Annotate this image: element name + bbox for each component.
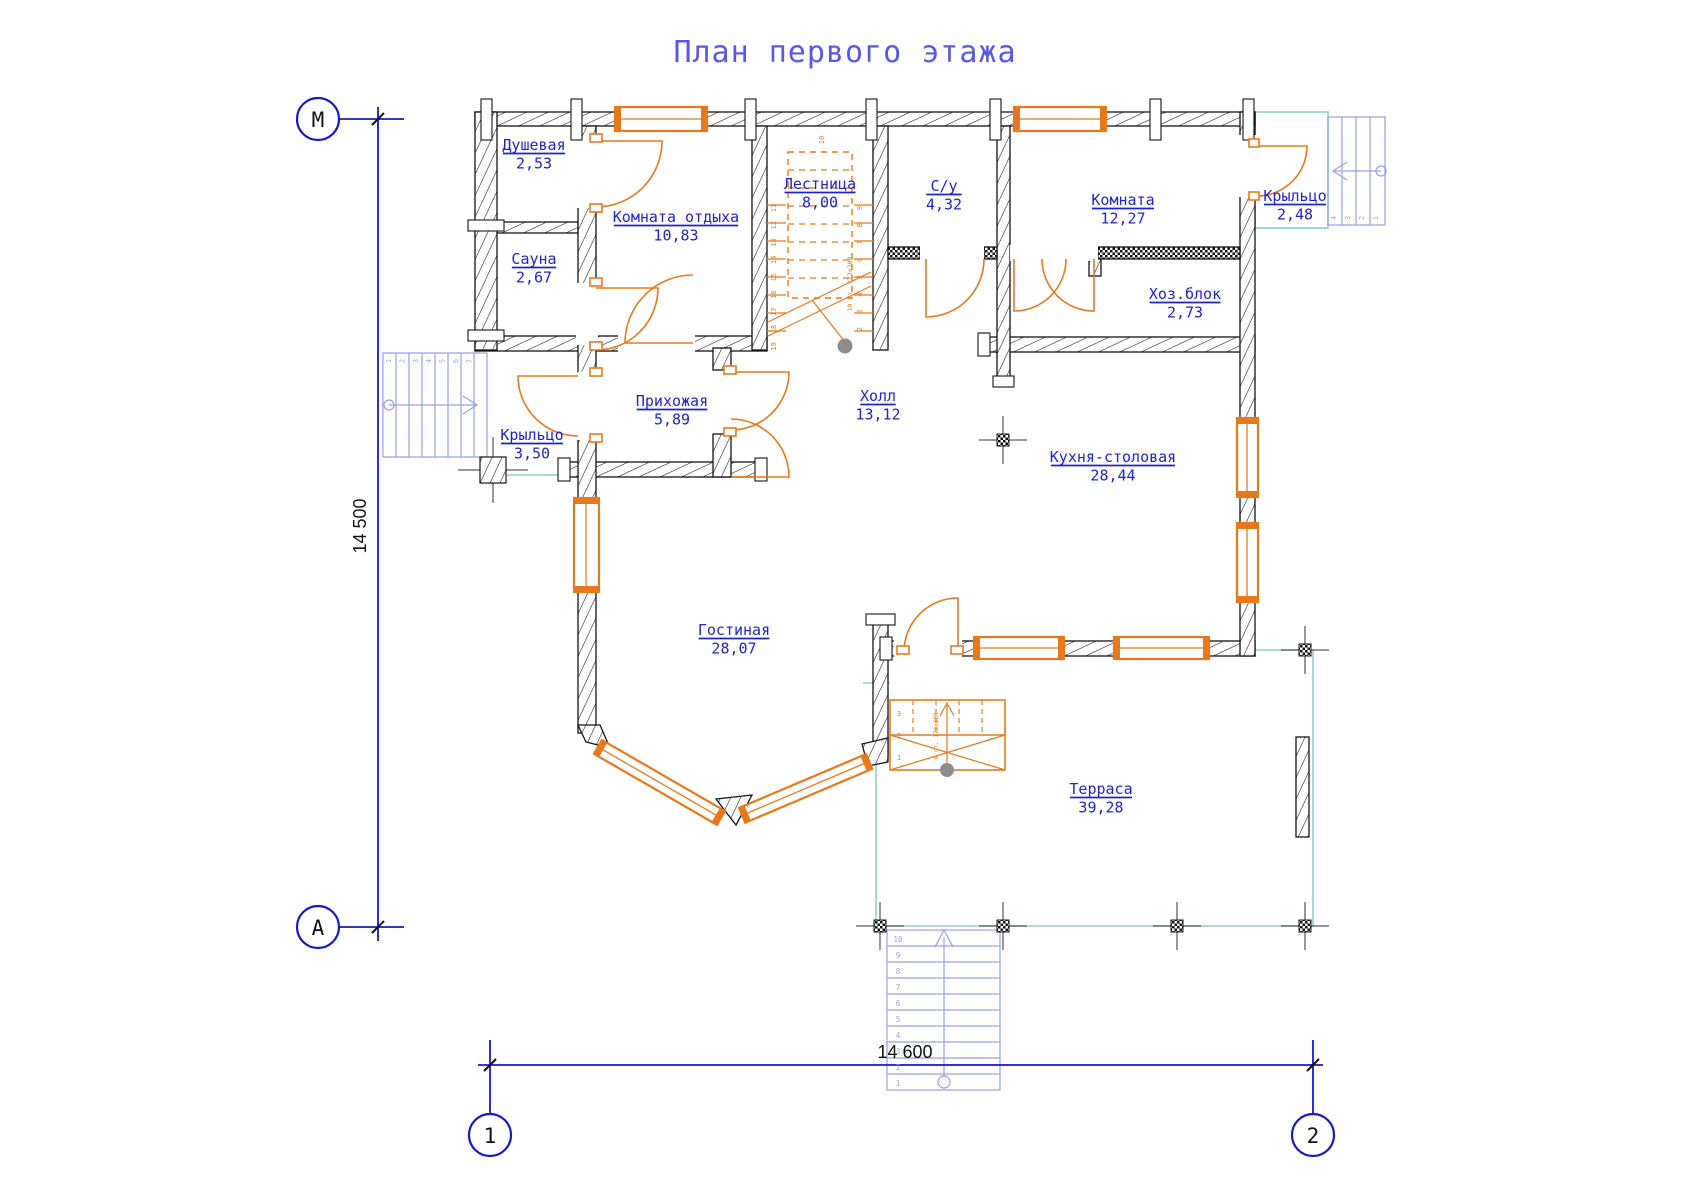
wall-wc-east bbox=[997, 126, 1010, 382]
room-name: Сауна bbox=[511, 250, 556, 268]
stair-step-number: 4 bbox=[856, 292, 864, 296]
stair-step-number: 2 bbox=[896, 1063, 901, 1072]
terrace-stair-note: 9 ст. 173х300 bbox=[933, 712, 940, 759]
room-area: 28,07 bbox=[711, 640, 756, 658]
stair-step-number: 1 bbox=[897, 754, 901, 762]
room-area: 4,32 bbox=[926, 196, 962, 214]
room-label-hozblok: Хоз.блок2,73 bbox=[1149, 285, 1221, 322]
stair-step-number: 17 bbox=[770, 308, 778, 316]
left-porch-stairs bbox=[383, 353, 487, 457]
stair-step-number: 6 bbox=[856, 258, 864, 262]
stair-step-number: 6 bbox=[452, 359, 460, 363]
door-shower bbox=[596, 141, 662, 207]
wall-shower-sauna bbox=[497, 222, 578, 233]
room-name: Комната bbox=[1091, 191, 1154, 209]
room-label-sauna: Сауна2,67 bbox=[511, 250, 556, 287]
window-living-west bbox=[574, 498, 599, 592]
stair-step-number: 1 bbox=[385, 359, 393, 363]
stair-step-number: 3 bbox=[896, 1047, 901, 1056]
room-label-gostinaya: Гостиная28,07 bbox=[698, 621, 770, 658]
window-bay-right bbox=[739, 754, 872, 823]
axis-label-A: А bbox=[312, 916, 325, 940]
room-name: Хоз.блок bbox=[1149, 285, 1221, 303]
stair-step-number: 3 bbox=[1344, 216, 1352, 220]
wall-hallway-south bbox=[568, 462, 762, 477]
room-label-komnata_otdyha: Комната отдыха10,83 bbox=[613, 208, 739, 245]
stair-step-number: 10 bbox=[893, 935, 903, 944]
window-kitchen-south-2 bbox=[1114, 637, 1209, 659]
terrace-inner-stairs bbox=[890, 700, 1005, 777]
room-label-su: С/у4,32 bbox=[926, 177, 962, 214]
axis-label-M: М bbox=[312, 108, 325, 132]
window-bay-left bbox=[594, 740, 725, 825]
window-rest-room bbox=[615, 107, 707, 131]
room-label-prihozhaya: Прихожая5,89 bbox=[636, 392, 708, 429]
stair-step-number: 3 bbox=[412, 359, 420, 363]
room-label-holl: Холл13,12 bbox=[855, 387, 900, 424]
stair-step-number: 7 bbox=[896, 983, 901, 992]
stair-step-number: 12 bbox=[770, 221, 778, 229]
room-area: 2,53 bbox=[516, 155, 552, 173]
room-area: 10,83 bbox=[653, 227, 698, 245]
room-name: Крыльцо bbox=[500, 426, 563, 444]
central-stair-note: 19 ст. 173х300 bbox=[846, 257, 854, 312]
door-rest-room bbox=[625, 275, 693, 343]
axis-label-1: 1 bbox=[484, 1124, 497, 1148]
page-title: План первого этажа bbox=[673, 35, 1016, 70]
stair-step-number: 1 bbox=[1372, 216, 1380, 220]
wall-stair-east bbox=[873, 126, 888, 350]
stair-step-number: 7 bbox=[465, 359, 473, 363]
room-name: Терраса bbox=[1069, 780, 1132, 798]
room-name: Комната отдыха bbox=[613, 208, 739, 226]
stair-step-number: 2 bbox=[1358, 216, 1366, 220]
room-label-kryltso_left: Крыльцо3,50 bbox=[500, 426, 563, 463]
stair-step-number: 3 bbox=[897, 710, 901, 718]
window-room bbox=[1014, 107, 1106, 131]
stair-step-number: 9 bbox=[896, 951, 901, 960]
terrace-main-stairs bbox=[887, 930, 1000, 1090]
stair-step-number: 1 bbox=[896, 1079, 901, 1088]
door-utility-right bbox=[1042, 259, 1094, 311]
window-kitchen-east-1 bbox=[1237, 418, 1258, 497]
stair-step-number: 7 bbox=[856, 240, 864, 244]
stair-step-number: 8 bbox=[856, 223, 864, 227]
stair-step-number: 2 bbox=[856, 327, 864, 331]
floor-plan-drawing: М А 1 2 14 500 14 600 План первого этажа… bbox=[0, 0, 1684, 1190]
room-name: Лестница bbox=[784, 175, 856, 193]
terrace-rail bbox=[1296, 737, 1309, 837]
stair-step-number: 2 bbox=[398, 359, 406, 363]
central-stair-top-number: 10 bbox=[818, 136, 826, 144]
stair-step-number: 16 bbox=[770, 290, 778, 298]
room-label-terrasa: Терраса39,28 bbox=[1069, 780, 1132, 817]
stair-step-number: 3 bbox=[856, 310, 864, 314]
room-name: Кухня-столовая bbox=[1050, 448, 1176, 466]
room-area: 2,67 bbox=[516, 269, 552, 287]
walls bbox=[475, 112, 1309, 837]
room-area: 3,50 bbox=[514, 445, 550, 463]
room-label-kryltso_right: Крыльцо2,48 bbox=[1263, 187, 1326, 224]
stair-step-number: 8 bbox=[896, 967, 901, 976]
room-name: Крыльцо bbox=[1263, 187, 1326, 205]
stair-step-number: 19 bbox=[770, 342, 778, 350]
stair-step-number: 11 bbox=[770, 204, 778, 212]
stair-step-number: 5 bbox=[856, 275, 864, 279]
room-area: 12,27 bbox=[1100, 210, 1145, 228]
door-wc bbox=[926, 259, 984, 317]
floor-plan-canvas: М А 1 2 14 500 14 600 План первого этажа… bbox=[0, 0, 1684, 1190]
partition-wc-right bbox=[984, 247, 997, 259]
stair-step-number: 18 bbox=[770, 325, 778, 333]
stair-step-number: 4 bbox=[1330, 216, 1338, 220]
dimension-horizontal: 14 600 bbox=[877, 1042, 932, 1062]
stair-step-number: 13 bbox=[770, 238, 778, 246]
partition-pier bbox=[1089, 259, 1101, 276]
room-name: Холл bbox=[860, 387, 896, 405]
stair-step-number: 6 bbox=[896, 999, 901, 1008]
wall-north-row-right bbox=[985, 337, 1255, 352]
room-name: С/у bbox=[930, 177, 957, 195]
room-area: 2,73 bbox=[1167, 304, 1203, 322]
stair-pivot-marker-2 bbox=[940, 763, 954, 777]
wall-stair-west bbox=[752, 126, 767, 350]
room-area: 28,44 bbox=[1090, 467, 1135, 485]
room-area: 13,12 bbox=[855, 406, 900, 424]
room-label-kuhnya: Кухня-столовая28,44 bbox=[1050, 448, 1176, 485]
stair-step-number: 15 bbox=[770, 273, 778, 281]
room-area: 39,28 bbox=[1078, 799, 1123, 817]
room-area: 2,48 bbox=[1277, 206, 1313, 224]
room-label-dushevaya: Душевая2,53 bbox=[502, 136, 565, 173]
axis-label-2: 2 bbox=[1307, 1124, 1320, 1148]
right-porch-stairs bbox=[1328, 117, 1386, 225]
room-label-komnata: Комната12,27 bbox=[1091, 191, 1154, 228]
partition-wc-left bbox=[888, 247, 920, 259]
room-area: 5,89 bbox=[654, 411, 690, 429]
terrace-boundary bbox=[507, 112, 1328, 926]
wall-top bbox=[475, 112, 1255, 126]
door-utility-left bbox=[1014, 259, 1066, 311]
stair-step-number: 5 bbox=[896, 1015, 901, 1024]
stair-step-number: 5 bbox=[439, 359, 447, 363]
partition-room-south bbox=[1098, 247, 1240, 259]
stair-pivot-marker bbox=[838, 339, 853, 354]
stair-step-number: 9 bbox=[856, 206, 864, 210]
room-name: Прихожая bbox=[636, 392, 708, 410]
stair-step-number: 2 bbox=[897, 732, 901, 740]
stair-step-number: 4 bbox=[425, 359, 433, 363]
wall-openings bbox=[576, 110, 1257, 658]
stair-step-number: 4 bbox=[896, 1031, 901, 1040]
window-kitchen-east-2 bbox=[1237, 523, 1258, 602]
stair-step-number: 14 bbox=[770, 256, 778, 264]
door-hallway-upper bbox=[731, 372, 789, 430]
dimension-vertical: 14 500 bbox=[350, 498, 370, 553]
room-name: Душевая bbox=[502, 136, 565, 154]
window-kitchen-south-1 bbox=[974, 637, 1064, 659]
room-area: 8,00 bbox=[802, 194, 838, 212]
room-name: Гостиная bbox=[698, 621, 770, 639]
